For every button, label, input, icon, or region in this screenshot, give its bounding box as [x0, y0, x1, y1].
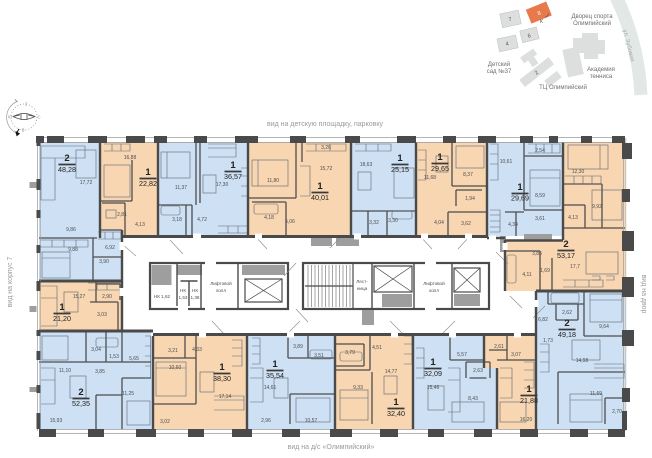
- svg-text:6,82: 6,82: [538, 317, 548, 323]
- svg-text:1: 1: [145, 167, 151, 178]
- svg-text:14,77: 14,77: [385, 369, 398, 375]
- svg-text:К: К: [540, 19, 543, 25]
- svg-text:11,10: 11,10: [59, 368, 71, 374]
- svg-text:2: 2: [563, 239, 568, 250]
- svg-text:4,18: 4,18: [264, 215, 274, 221]
- svg-text:1: 1: [430, 357, 436, 368]
- svg-text:15,93: 15,93: [50, 418, 63, 424]
- svg-text:17,30: 17,30: [216, 182, 229, 188]
- svg-text:вид на корпус 7: вид на корпус 7: [7, 256, 14, 307]
- svg-text:1: 1: [393, 397, 399, 408]
- svg-text:53,17: 53,17: [557, 251, 575, 260]
- svg-text:3,04: 3,04: [91, 347, 101, 353]
- svg-text:16,20: 16,20: [520, 417, 533, 423]
- svg-text:4,34: 4,34: [508, 222, 518, 228]
- svg-text:8,43: 8,43: [468, 396, 478, 402]
- svg-text:1: 1: [219, 362, 225, 373]
- svg-text:НК: НК: [192, 288, 198, 293]
- svg-text:3,30: 3,30: [388, 218, 398, 224]
- svg-text:3,32: 3,32: [369, 220, 379, 226]
- svg-text:15,27: 15,27: [73, 294, 86, 300]
- svg-text:40,01: 40,01: [311, 193, 329, 202]
- svg-text:НК 1,62: НК 1,62: [154, 294, 171, 299]
- svg-text:ТЦ Олимпийский: ТЦ Олимпийский: [539, 84, 587, 91]
- svg-text:21,20: 21,20: [53, 314, 71, 323]
- svg-text:14,98: 14,98: [576, 358, 589, 364]
- svg-text:29,69: 29,69: [511, 194, 529, 203]
- svg-text:вид на двор: вид на двор: [640, 275, 647, 314]
- svg-text:52,35: 52,35: [72, 399, 90, 408]
- svg-text:10,60: 10,60: [169, 365, 182, 371]
- svg-text:1,53: 1,53: [179, 295, 188, 300]
- svg-text:3,18: 3,18: [172, 217, 182, 223]
- svg-text:5,06: 5,06: [285, 219, 295, 225]
- svg-text:3,62: 3,62: [461, 221, 471, 227]
- svg-text:2,90: 2,90: [102, 294, 112, 300]
- svg-text:16,88: 16,88: [124, 155, 137, 161]
- svg-text:11,37: 11,37: [175, 185, 187, 191]
- svg-text:3,85: 3,85: [95, 369, 105, 375]
- svg-text:1,53: 1,53: [109, 354, 119, 360]
- svg-text:холл: холл: [216, 288, 226, 293]
- svg-text:2,70: 2,70: [612, 409, 622, 415]
- svg-text:2,54: 2,54: [535, 148, 545, 154]
- svg-text:17,14: 17,14: [219, 394, 232, 400]
- svg-text:4,13: 4,13: [568, 215, 578, 221]
- svg-text:вид на д/с «Олимпийский»: вид на д/с «Олимпийский»: [288, 443, 375, 451]
- svg-text:8,37: 8,37: [463, 172, 473, 178]
- svg-text:35,54: 35,54: [266, 371, 284, 380]
- svg-text:3,61: 3,61: [535, 216, 545, 222]
- svg-text:4,72: 4,72: [197, 217, 207, 223]
- svg-text:29,65: 29,65: [431, 164, 449, 173]
- svg-text:5,57: 5,57: [457, 352, 467, 358]
- svg-text:6,92: 6,92: [105, 245, 115, 251]
- svg-text:15,72: 15,72: [320, 166, 333, 172]
- svg-text:1: 1: [397, 153, 403, 164]
- svg-text:1,94: 1,94: [465, 196, 475, 202]
- svg-text:Детский: Детский: [488, 61, 510, 68]
- svg-text:Академия: Академия: [587, 67, 615, 73]
- svg-text:3,21: 3,21: [168, 348, 178, 354]
- svg-text:3,79: 3,79: [345, 350, 355, 356]
- svg-text:2,96: 2,96: [261, 418, 271, 424]
- svg-text:15,46: 15,46: [427, 385, 440, 391]
- svg-text:48,28: 48,28: [58, 165, 76, 174]
- svg-text:1: 1: [230, 160, 236, 171]
- svg-text:Олимпийский: Олимпийский: [573, 20, 611, 27]
- svg-text:10,57: 10,57: [305, 418, 318, 424]
- svg-text:10,61: 10,61: [500, 159, 513, 165]
- svg-text:3,89: 3,89: [293, 344, 303, 350]
- svg-text:3,07: 3,07: [511, 352, 521, 358]
- svg-text:2: 2: [564, 318, 569, 329]
- svg-text:1: 1: [272, 359, 278, 370]
- svg-text:21,88: 21,88: [520, 396, 538, 405]
- svg-text:38,30: 38,30: [213, 374, 231, 383]
- svg-text:4,11: 4,11: [522, 272, 532, 278]
- svg-text:С: С: [37, 115, 40, 120]
- svg-text:9,92: 9,92: [592, 204, 602, 210]
- svg-text:2: 2: [64, 153, 69, 164]
- svg-text:11,68: 11,68: [424, 175, 436, 181]
- svg-text:Лифтовой: Лифтовой: [210, 280, 232, 286]
- svg-text:3,03: 3,03: [97, 312, 107, 318]
- svg-text:3,90: 3,90: [99, 259, 109, 265]
- svg-text:1,69: 1,69: [540, 268, 550, 274]
- svg-text:Лифтовой: Лифтовой: [423, 280, 445, 286]
- svg-text:2,62: 2,62: [562, 310, 572, 316]
- svg-text:49,18: 49,18: [558, 330, 576, 339]
- svg-text:4,13: 4,13: [135, 222, 145, 228]
- svg-text:2,61: 2,61: [494, 344, 504, 350]
- svg-text:3,26: 3,26: [321, 145, 331, 151]
- svg-text:тенниса: тенниса: [590, 74, 613, 80]
- svg-text:5,65: 5,65: [129, 356, 139, 362]
- svg-text:Лест-: Лест-: [356, 279, 368, 284]
- svg-text:17,72: 17,72: [80, 180, 93, 186]
- svg-text:2,81: 2,81: [117, 212, 127, 218]
- svg-text:Дворец спорта: Дворец спорта: [571, 14, 613, 20]
- svg-text:вид на детскую площадку, парко: вид на детскую площадку, парковку: [267, 121, 383, 128]
- svg-text:25,15: 25,15: [391, 165, 409, 174]
- svg-text:В: В: [22, 128, 25, 133]
- svg-text:18,63: 18,63: [360, 162, 373, 168]
- svg-text:холл: холл: [429, 288, 439, 293]
- svg-text:3,02: 3,02: [160, 419, 170, 425]
- svg-text:сад №37: сад №37: [487, 68, 512, 75]
- svg-text:НК: НК: [180, 288, 186, 293]
- svg-text:1,38: 1,38: [191, 295, 200, 300]
- svg-text:11,80: 11,80: [267, 178, 279, 184]
- svg-text:1: 1: [526, 384, 532, 395]
- svg-text:9,64: 9,64: [599, 324, 609, 330]
- svg-text:2: 2: [78, 387, 83, 398]
- svg-text:32,40: 32,40: [387, 409, 405, 418]
- svg-text:8,59: 8,59: [535, 193, 545, 199]
- svg-text:11,25: 11,25: [122, 391, 134, 397]
- svg-text:14,61: 14,61: [264, 385, 277, 391]
- svg-text:4,33: 4,33: [192, 347, 202, 353]
- svg-text:1,73: 1,73: [543, 338, 553, 344]
- svg-text:9,86: 9,86: [66, 227, 76, 233]
- svg-text:2,63: 2,63: [473, 368, 483, 374]
- svg-text:4,04: 4,04: [434, 220, 444, 226]
- svg-text:32,09: 32,09: [424, 369, 442, 378]
- svg-text:9,33: 9,33: [353, 385, 363, 391]
- svg-text:11,69: 11,69: [590, 391, 602, 397]
- svg-text:ница: ница: [357, 286, 368, 291]
- svg-text:1: 1: [317, 181, 323, 192]
- svg-text:17,7: 17,7: [570, 264, 580, 270]
- svg-text:1: 1: [59, 302, 65, 313]
- svg-text:22,82: 22,82: [139, 179, 157, 188]
- svg-text:1: 1: [437, 152, 443, 163]
- svg-text:3,85: 3,85: [532, 251, 542, 257]
- svg-text:9,88: 9,88: [68, 247, 78, 253]
- svg-text:3,51: 3,51: [314, 353, 324, 359]
- svg-text:4,51: 4,51: [372, 345, 382, 351]
- svg-text:1: 1: [517, 182, 523, 193]
- svg-text:36,57: 36,57: [224, 172, 242, 181]
- svg-text:12,30: 12,30: [572, 169, 585, 175]
